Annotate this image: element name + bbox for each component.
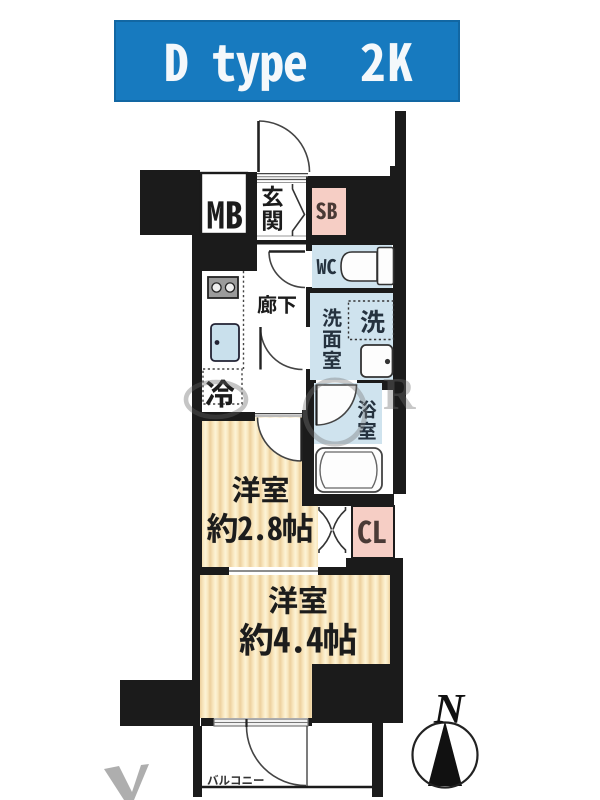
svg-text:R: R: [383, 369, 416, 419]
svg-text:N: N: [433, 687, 466, 733]
